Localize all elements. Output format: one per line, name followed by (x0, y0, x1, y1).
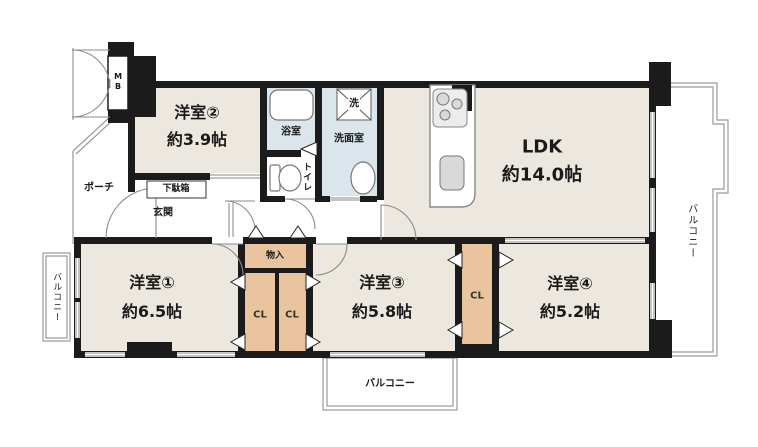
room3-name-label: 洋室③ (359, 274, 405, 292)
porch-outline (73, 48, 113, 244)
storage-label: 物入 (266, 251, 284, 261)
closet-mid-label: CL (470, 290, 484, 302)
toilet-fixture (270, 165, 301, 191)
porch-label: ポーチ (84, 182, 114, 194)
entrance-label: 玄関 (153, 207, 173, 219)
toilet-label: トイレ (301, 162, 311, 192)
room2-size-label: 約3.9帖 (167, 131, 227, 149)
balcony-bottom-label: バルコニー (365, 378, 415, 390)
ldk-size-label: 約14.0帖 (502, 166, 582, 187)
room4-size-label: 約5.2帖 (540, 303, 600, 321)
meter-box-label: MB (113, 72, 122, 92)
pillar-bottom-right (649, 320, 672, 358)
pillar-top-right (649, 62, 671, 106)
room1-name-label: 洋室① (129, 274, 175, 292)
closet-left-label: CL (253, 309, 267, 321)
shoe-cabinet-label: 下駄箱 (162, 184, 189, 194)
room4-name-label: 洋室④ (547, 275, 593, 293)
ldk-name-label: LDK (522, 138, 562, 159)
stove (433, 89, 467, 127)
mb-door-arc-top (72, 50, 110, 88)
pillar-room1 (127, 342, 172, 358)
balcony-right-label: バルコニー (685, 204, 697, 259)
bathtub (270, 90, 313, 120)
room3-size-label: 約5.8帖 (352, 303, 412, 321)
room4-floor (499, 244, 649, 351)
room1-floor (81, 244, 238, 351)
room3-floor (313, 244, 455, 351)
room1-size-label: 約6.5帖 (122, 303, 182, 321)
washer-label: 洗 (348, 98, 360, 110)
bathroom-label: 浴室 (281, 126, 301, 138)
washroom-label: 洗面室 (334, 133, 364, 145)
closet-right-label: CL (285, 309, 299, 321)
toilet-door-arc (285, 199, 315, 229)
room2-name-label: 洋室② (174, 104, 220, 122)
kitchen-sink (440, 156, 464, 190)
mb-door-arc-bottom (72, 79, 110, 117)
washbasin (351, 162, 375, 194)
ldk-floor (384, 88, 649, 237)
floor-plan: 洋室② 約3.9帖 浴室 洗 洗面室 トイレ LDK 約14.0帖 ポーチ 下駄… (0, 0, 758, 447)
balcony-left-label: バルコニー (51, 272, 61, 322)
